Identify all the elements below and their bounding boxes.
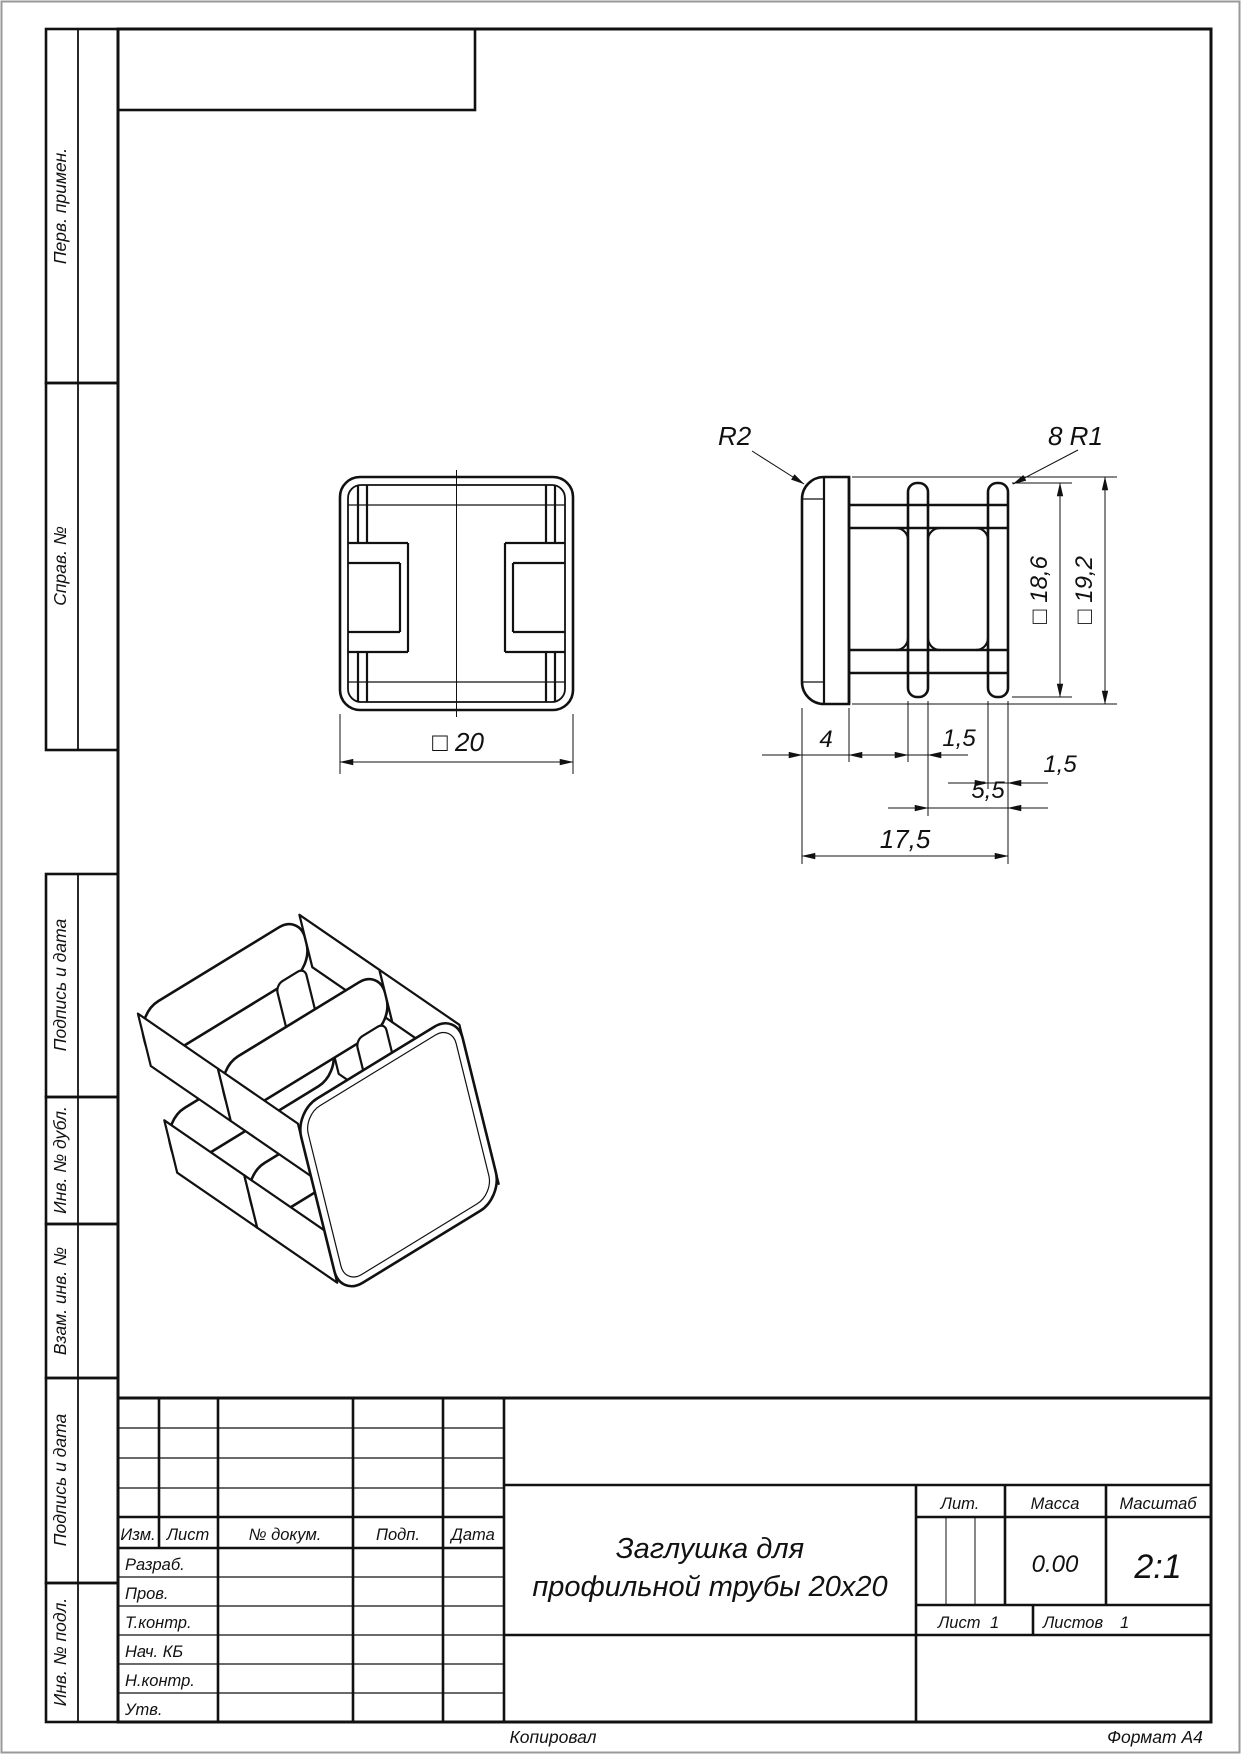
approval-tech-control: Т.контр. bbox=[125, 1614, 192, 1632]
side-horizontal-dimensions: 4 1,5 1,5 5,5 17,5 bbox=[762, 701, 1077, 864]
revision-col-podp: Подп. bbox=[376, 1526, 420, 1544]
approval-checked: Пров. bbox=[125, 1585, 169, 1603]
scale-value: 2:1 bbox=[1133, 1548, 1181, 1586]
approval-norm-control: Н.контр. bbox=[125, 1672, 195, 1690]
dim-flange-width-label: 4 bbox=[819, 726, 832, 753]
dim-rib-span-label: 5,5 bbox=[971, 777, 1005, 804]
revision-col-izm: Изм. bbox=[120, 1526, 155, 1544]
side-flange bbox=[802, 477, 849, 704]
engineering-drawing-canvas: Перв. примен. Справ. № Подпись и дата Ин… bbox=[0, 0, 1241, 1754]
margin-label-inv-podl: Инв. № подл. bbox=[50, 1598, 70, 1707]
mass-header: Масса bbox=[1031, 1495, 1080, 1513]
part-title-line2: профильной трубы 20x20 bbox=[532, 1571, 887, 1603]
approval-approved: Утв. bbox=[124, 1701, 163, 1719]
isometric-view bbox=[138, 915, 502, 1297]
mass-value: 0.00 bbox=[1032, 1551, 1079, 1578]
dim-flange-height-label: □ 19,2 bbox=[1071, 556, 1098, 624]
leader-8r1: 8 R1 bbox=[1013, 421, 1103, 484]
drawing-frame bbox=[118, 29, 1211, 1722]
front-view: □ 20 bbox=[340, 470, 573, 774]
title-block-right: Лит. Масса Масштаб 0.00 2:1 Лист 1 Листо… bbox=[504, 1485, 1211, 1722]
dim-radius-r2-label: R2 bbox=[718, 421, 752, 451]
revision-col-doc: № докум. bbox=[249, 1526, 322, 1544]
scale-header: Масштаб bbox=[1119, 1495, 1197, 1513]
side-vertical-dimensions: □ 18,6 □ 19,2 bbox=[852, 477, 1117, 704]
margin-label-inv-dubl: Инв. № дубл. bbox=[50, 1106, 70, 1214]
dim-rib-mid-label: 1,5 bbox=[942, 725, 976, 752]
approval-dept-head: Нач. КБ bbox=[125, 1643, 183, 1661]
side-fillets bbox=[896, 528, 988, 650]
approval-rows: Разраб. Пров. Т.контр. Нач. КБ Н.контр. … bbox=[118, 1556, 504, 1719]
side-rib-end bbox=[988, 483, 1008, 697]
dim-rib-end-label: 1,5 bbox=[1043, 751, 1077, 778]
margin-label-perv-primen: Перв. примен. bbox=[50, 148, 70, 264]
front-right-channel bbox=[505, 485, 565, 702]
side-rib-middle bbox=[908, 483, 928, 697]
lit-header: Лит. bbox=[940, 1495, 980, 1513]
margin-column: Перв. примен. Справ. № Подпись и дата Ин… bbox=[46, 29, 118, 1722]
title-block: Изм. Лист № докум. Подп. Дата Разраб. Пр… bbox=[118, 1398, 1211, 1722]
dim-body-height-label: □ 18,6 bbox=[1026, 555, 1053, 624]
sheet-number: 1 bbox=[990, 1614, 999, 1632]
side-view: R2 8 R1 □ 18,6 □ 19,2 4 1,5 bbox=[718, 421, 1117, 864]
part-title-line1: Заглушка для bbox=[616, 1533, 804, 1565]
footer-format: Формат A4 bbox=[1107, 1727, 1203, 1747]
leader-r2: R2 bbox=[718, 421, 804, 484]
dim-front-width-label: □ 20 bbox=[432, 727, 484, 757]
margin-label-podpis-data-1: Подпись и дата bbox=[50, 919, 70, 1052]
sheets-label: Листов bbox=[1042, 1614, 1103, 1632]
footer: Копировал Формат A4 bbox=[509, 1727, 1203, 1747]
approval-developed: Разраб. bbox=[125, 1556, 185, 1574]
sheet-label: Лист bbox=[937, 1614, 980, 1632]
front-left-channel bbox=[348, 485, 408, 702]
top-reference-box bbox=[118, 29, 475, 110]
dim-fillet-8r1-label: 8 R1 bbox=[1048, 421, 1103, 451]
margin-label-sprav-no: Справ. № bbox=[50, 526, 70, 606]
page-edge bbox=[2, 2, 1240, 1753]
sheets-total: 1 bbox=[1120, 1614, 1129, 1632]
dim-total-length-label: 17,5 bbox=[880, 824, 931, 854]
revision-col-data: Дата bbox=[449, 1526, 495, 1544]
front-dimension-20: □ 20 bbox=[340, 714, 573, 774]
revision-col-list: Лист bbox=[166, 1526, 209, 1544]
footer-copied-by: Копировал bbox=[509, 1727, 596, 1747]
margin-label-podpis-data-2: Подпись и дата bbox=[50, 1414, 70, 1547]
margin-label-vzam-inv: Взам. инв. № bbox=[50, 1247, 70, 1355]
